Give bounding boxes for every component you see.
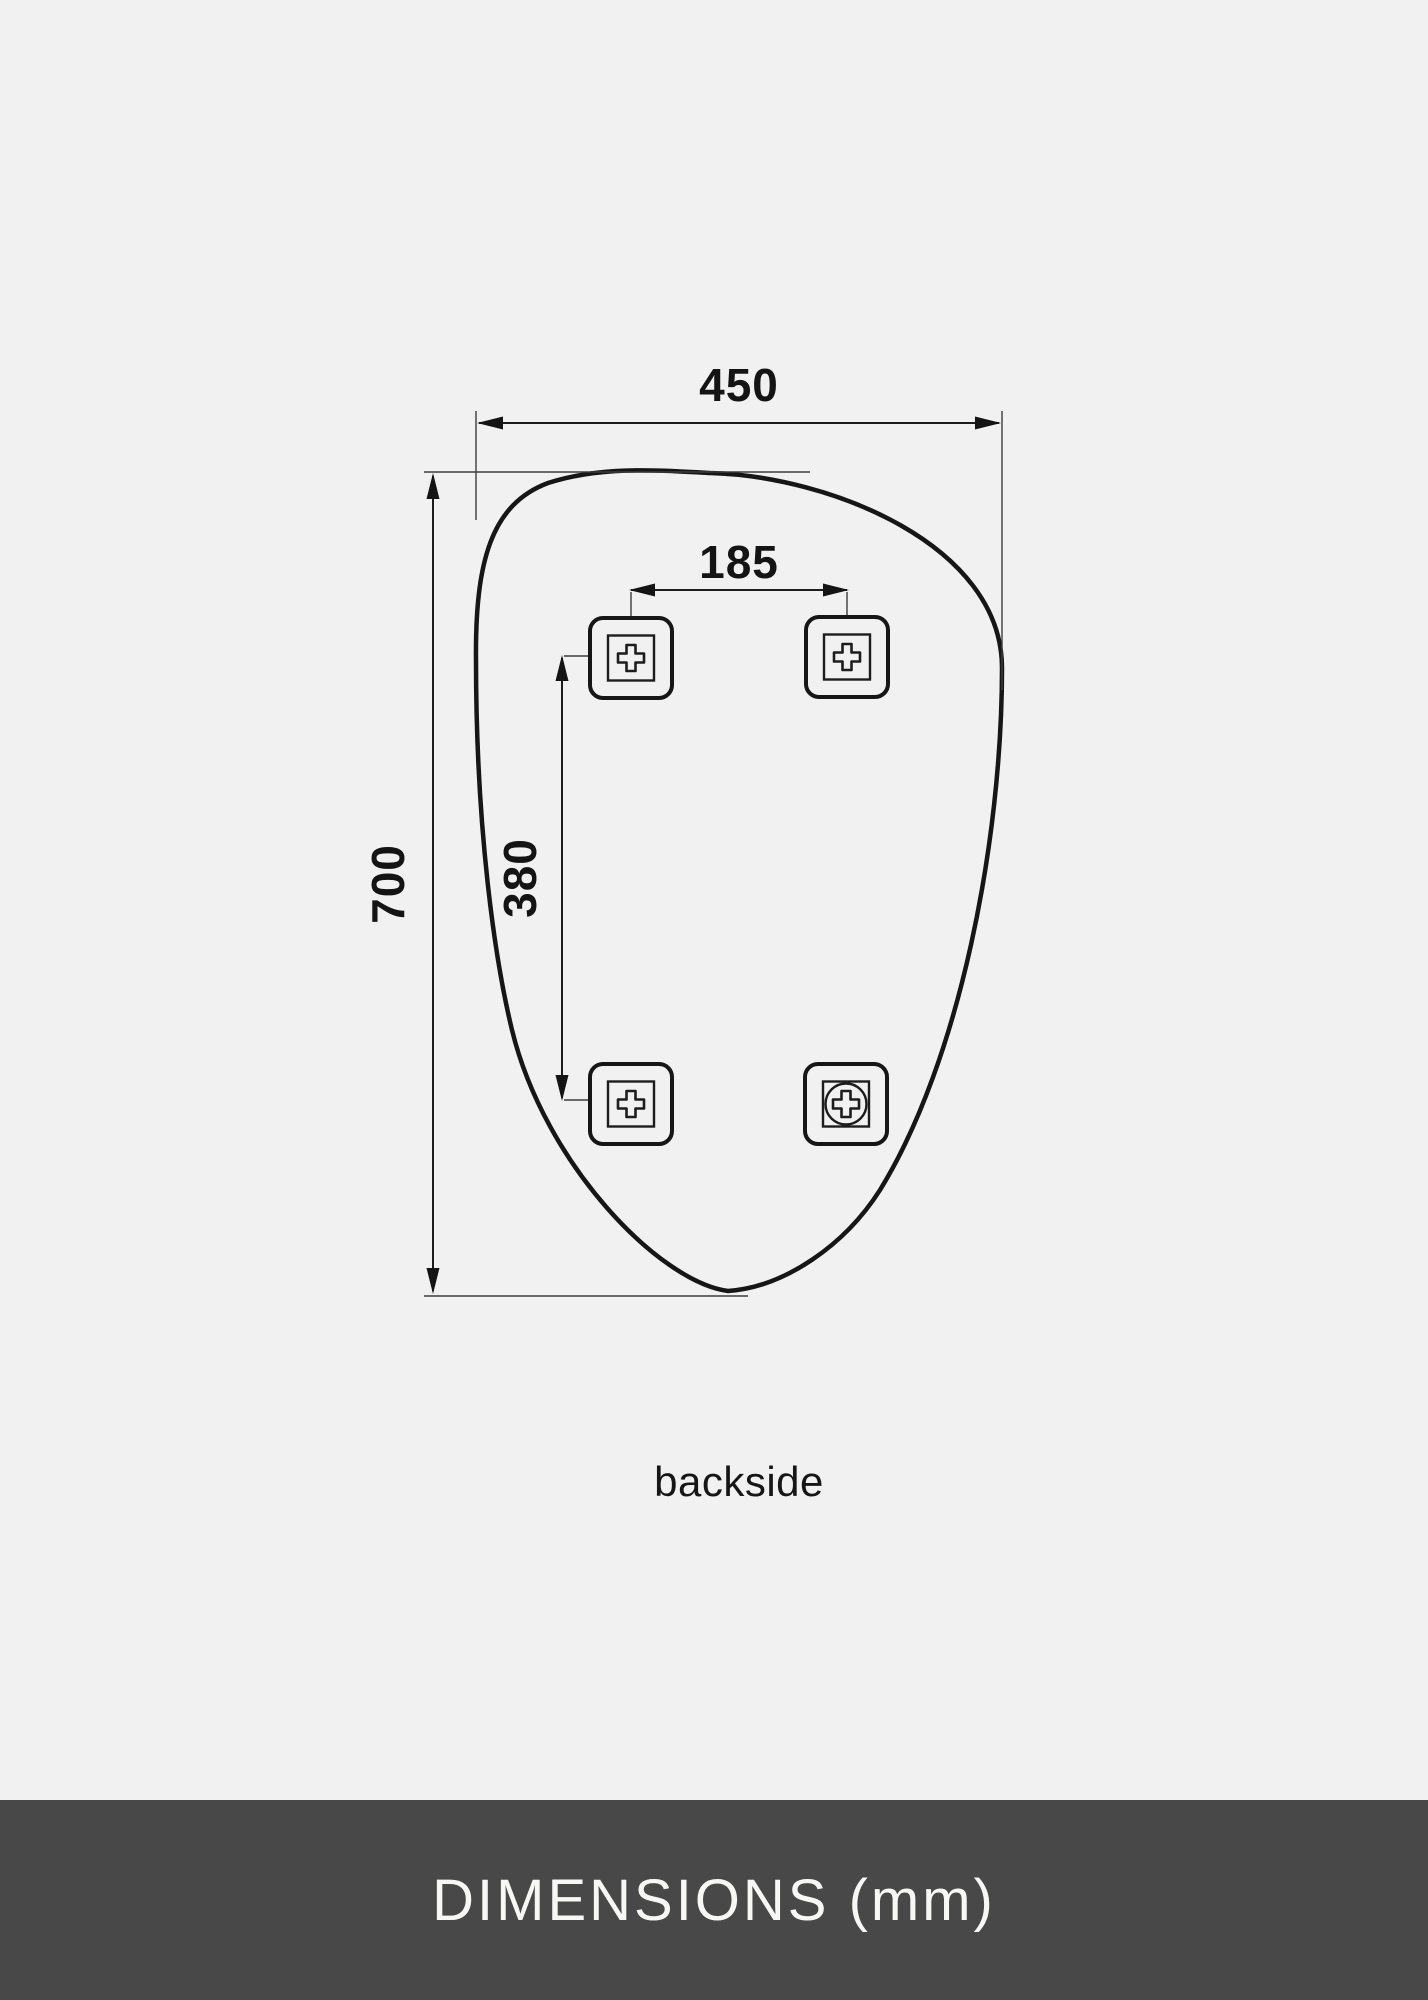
- arrowhead-left-icon: [477, 417, 503, 430]
- technical-drawing: 450 700 185 380: [0, 0, 1428, 2000]
- arrowhead-right-icon: [975, 417, 1001, 430]
- footer-bar: DIMENSIONS (mm): [0, 1800, 1428, 2000]
- mirror-outline: [476, 470, 1002, 1291]
- dimension-height: 700: [362, 473, 440, 1294]
- dimension-width-label: 450: [699, 359, 779, 411]
- arrowhead-down-icon: [556, 1075, 569, 1101]
- dimension-bracket-spacing-vertical: 380: [494, 655, 591, 1101]
- mounting-bracket-top-right-icon: [806, 617, 888, 697]
- dimension-width: 450: [477, 359, 1001, 430]
- dimension-height-label: 700: [362, 844, 414, 924]
- dimension-bracket-spacing-horizontal: 185: [629, 536, 849, 618]
- mounting-bracket-bottom-left-icon: [590, 1064, 672, 1144]
- mounting-bracket-top-left-icon: [590, 618, 672, 698]
- view-label: backside: [654, 1458, 824, 1505]
- footer-title: DIMENSIONS (mm): [432, 1867, 996, 1934]
- dimension-diagram-page: 450 700 185 380: [0, 0, 1428, 2000]
- mounting-bracket-screw-bottom-right-icon: [805, 1064, 887, 1144]
- dimension-bracket-horizontal-label: 185: [699, 536, 779, 588]
- arrowhead-down-icon: [427, 1268, 440, 1294]
- arrowhead-up-icon: [556, 655, 569, 681]
- dimension-bracket-vertical-label: 380: [494, 838, 546, 918]
- arrowhead-right-icon: [823, 584, 849, 597]
- arrowhead-left-icon: [629, 584, 655, 597]
- arrowhead-up-icon: [427, 473, 440, 499]
